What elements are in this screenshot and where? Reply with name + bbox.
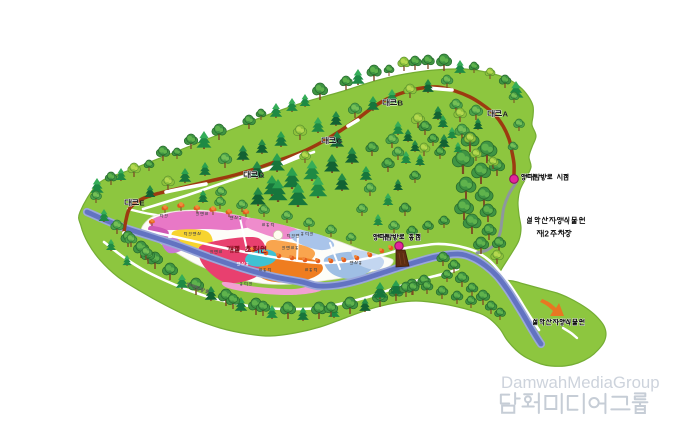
svg-text:DamwahMediaGroup: DamwahMediaGroup — [501, 373, 660, 392]
svg-text:C: C — [337, 136, 343, 145]
svg-text:A: A — [503, 109, 509, 118]
svg-text:E: E — [140, 198, 145, 207]
svg-text:D: D — [259, 170, 265, 179]
svg-text:2: 2 — [544, 230, 549, 239]
svg-text:B: B — [398, 98, 404, 107]
